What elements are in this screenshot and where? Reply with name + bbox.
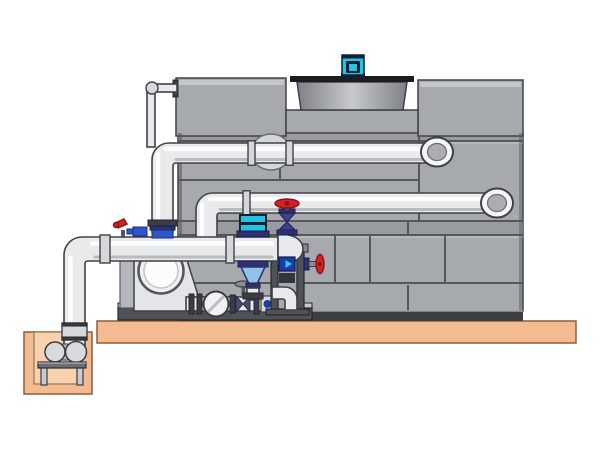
flow-device — [279, 257, 295, 271]
makeup-pipe-elbow — [146, 82, 158, 94]
tower-mid-band — [178, 221, 523, 235]
tower-recessed-band — [286, 110, 418, 133]
sump-pump-body — [66, 342, 87, 363]
check-valve — [204, 292, 229, 317]
tower-roof-left-panel — [173, 78, 286, 136]
cooling-tower-casing — [173, 55, 523, 321]
pipe-coupling — [286, 141, 293, 166]
illustration-canvas — [0, 0, 600, 450]
tower-roof-right-panel — [418, 80, 523, 136]
pipe-coupling — [243, 191, 250, 216]
concrete-pad — [97, 321, 576, 343]
lower-pipe-elbow-flange — [481, 189, 513, 218]
sump-pump — [45, 342, 87, 363]
pipe-coupling — [100, 235, 110, 263]
pipe-coupling — [248, 141, 255, 166]
sump-pump-motor — [45, 342, 65, 362]
suction-pipe-sleeve — [62, 323, 87, 340]
butterfly-actuator — [133, 227, 147, 236]
fan-shroud — [290, 76, 414, 110]
upper-pipe-elbow-flange — [421, 138, 453, 167]
motor-window — [349, 64, 357, 71]
cooling-tower-diagram — [0, 0, 600, 450]
fan-motor — [341, 55, 365, 79]
column-dark-panel — [279, 273, 295, 283]
pipe-coupling — [226, 235, 234, 263]
